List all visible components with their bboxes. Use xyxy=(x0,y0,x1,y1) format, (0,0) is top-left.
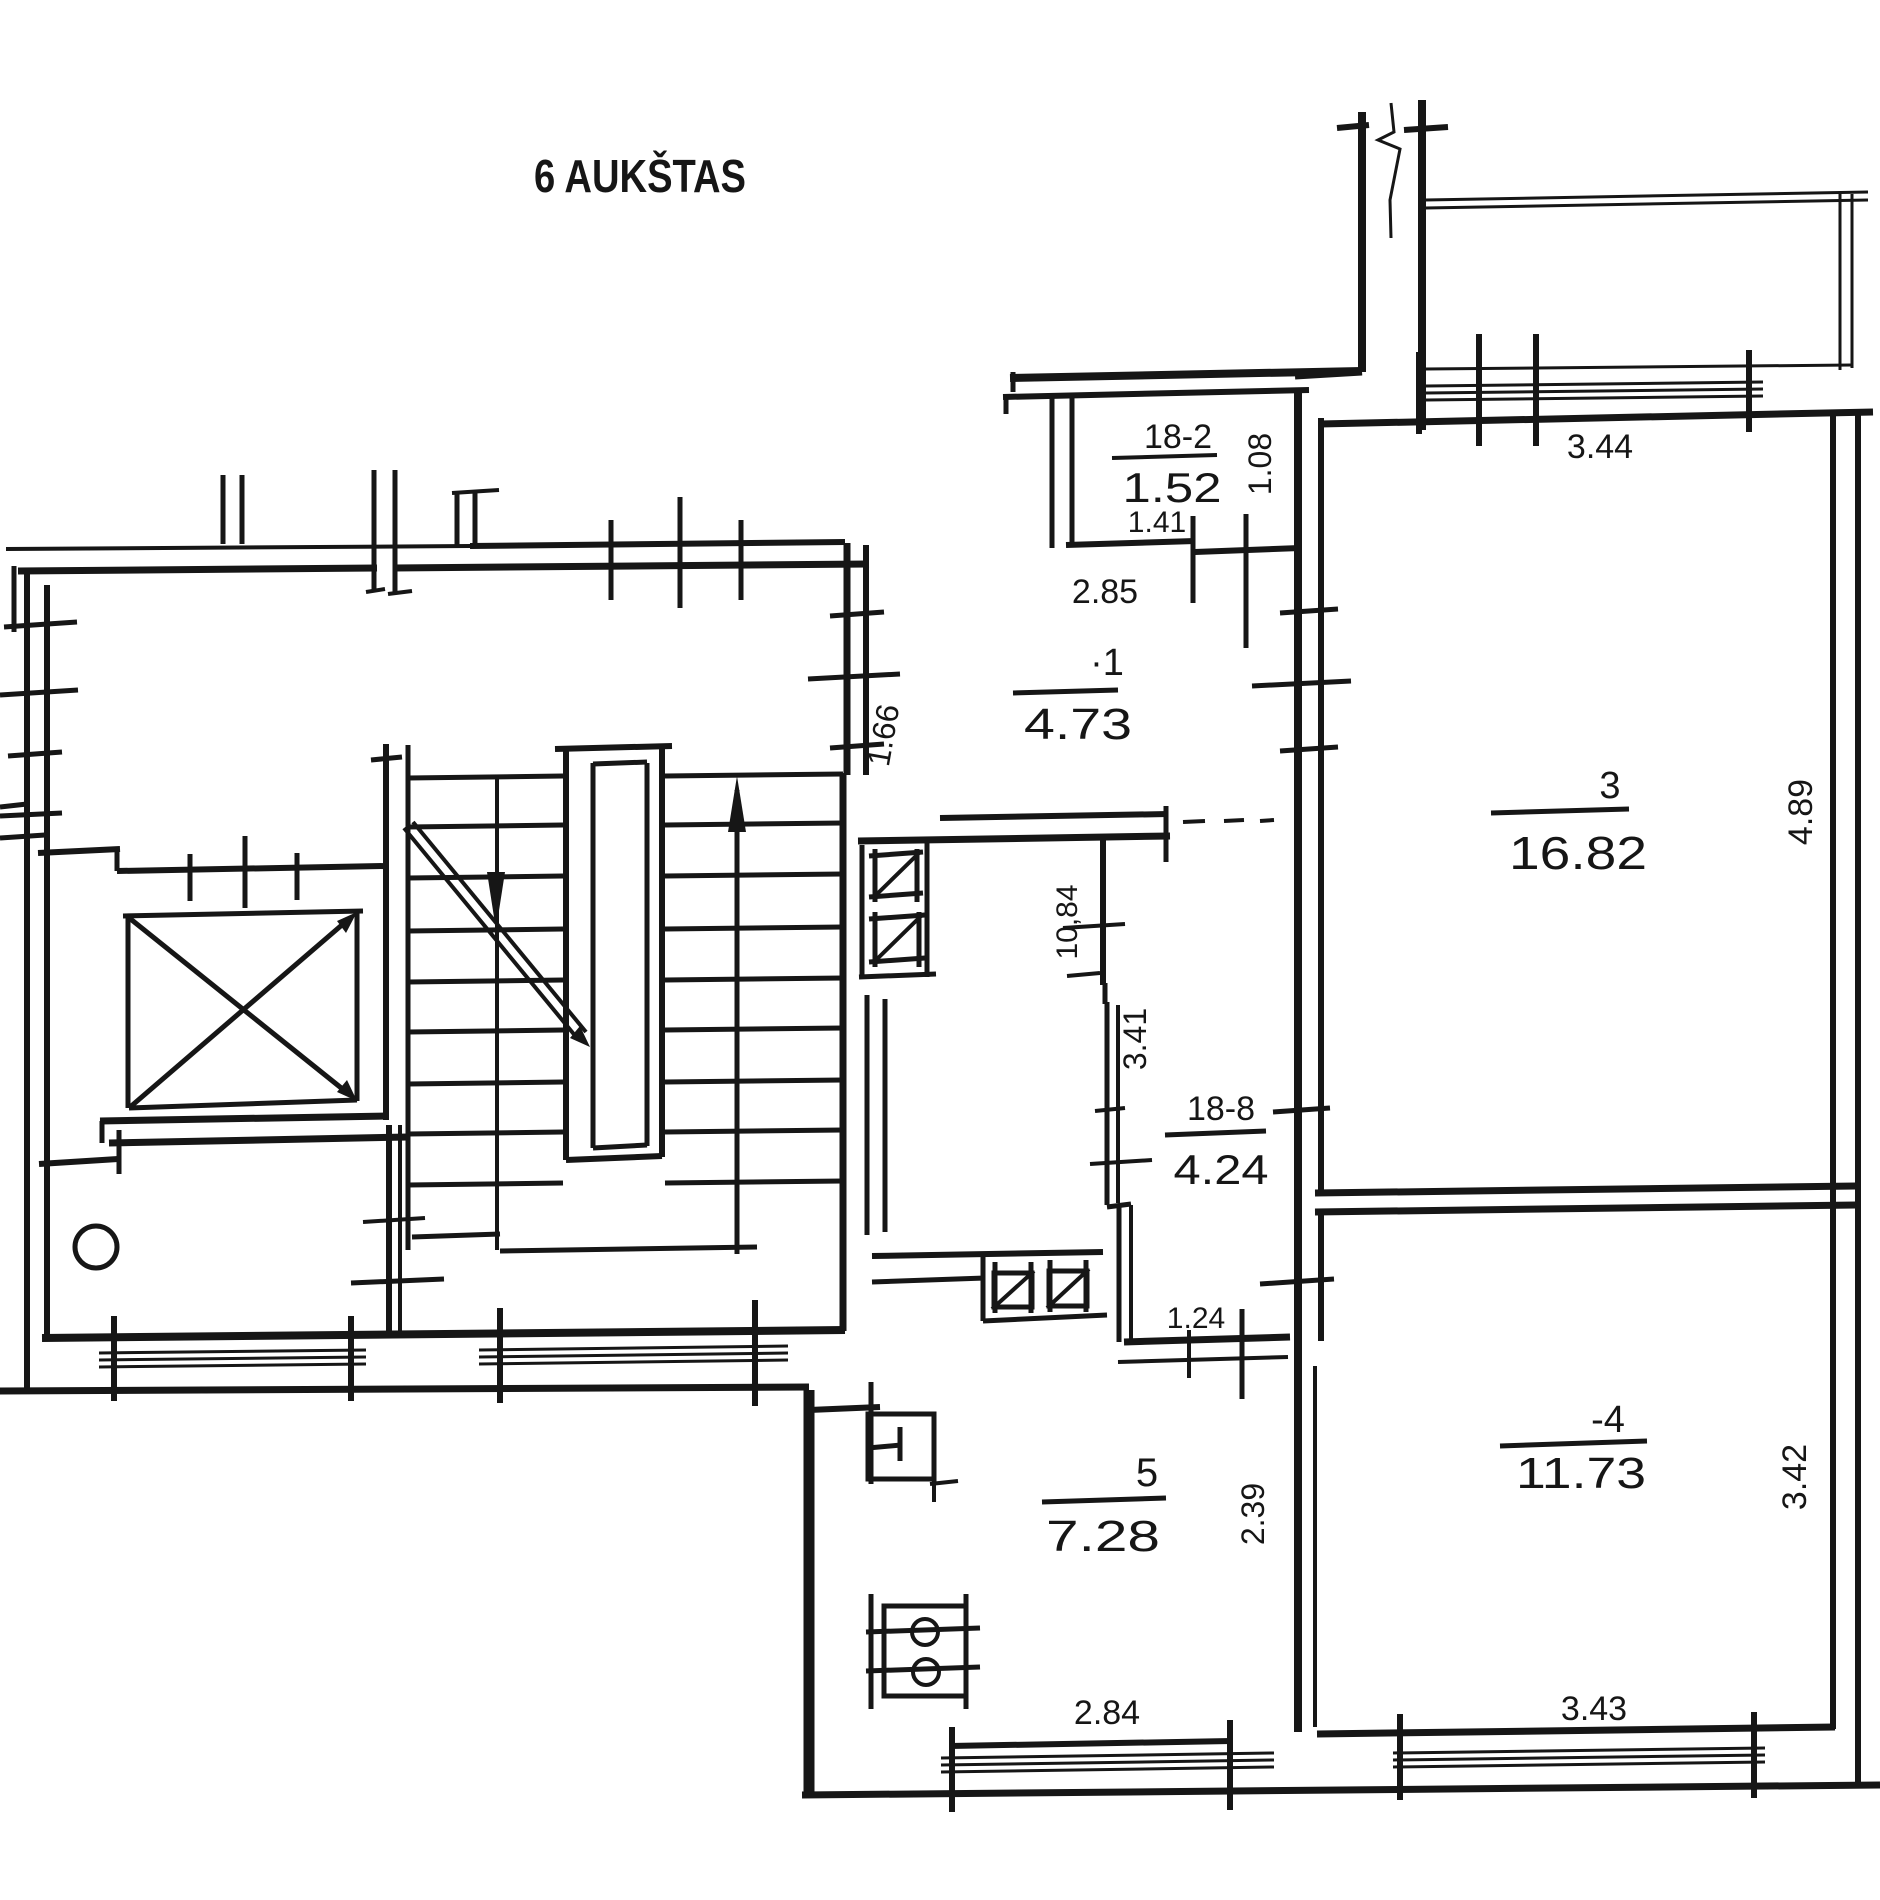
svg-text:6 AUKŠTAS: 6 AUKŠTAS xyxy=(534,150,746,202)
svg-text:1.24: 1.24 xyxy=(1167,1302,1225,1335)
svg-text:2.39: 2.39 xyxy=(1235,1483,1271,1545)
svg-text:4.89: 4.89 xyxy=(1782,779,1820,845)
svg-text:5: 5 xyxy=(1136,1451,1158,1495)
svg-text:1.52: 1.52 xyxy=(1123,464,1222,511)
svg-text:3.42: 3.42 xyxy=(1776,1444,1814,1510)
svg-text:3: 3 xyxy=(1599,765,1620,807)
svg-text:3.41: 3.41 xyxy=(1117,1008,1153,1070)
svg-text:-4: -4 xyxy=(1591,1399,1625,1441)
svg-text:11.73: 11.73 xyxy=(1516,1449,1646,1498)
svg-text:2.85: 2.85 xyxy=(1072,573,1138,611)
svg-text:18-2: 18-2 xyxy=(1144,418,1212,456)
svg-text:2.84: 2.84 xyxy=(1074,1694,1140,1732)
svg-text:·1: ·1 xyxy=(1090,642,1124,684)
svg-text:10,84: 10,84 xyxy=(1051,884,1084,959)
svg-text:1.41: 1.41 xyxy=(1128,506,1186,539)
svg-text:3.44: 3.44 xyxy=(1567,428,1633,466)
svg-text:4.73: 4.73 xyxy=(1024,700,1132,749)
svg-text:1.08: 1.08 xyxy=(1242,433,1278,495)
svg-text:18-8: 18-8 xyxy=(1187,1090,1255,1128)
svg-text:7.28: 7.28 xyxy=(1046,1512,1160,1561)
svg-text:4.24: 4.24 xyxy=(1174,1146,1269,1193)
svg-text:3.43: 3.43 xyxy=(1561,1690,1627,1728)
svg-text:16.82: 16.82 xyxy=(1509,827,1647,879)
